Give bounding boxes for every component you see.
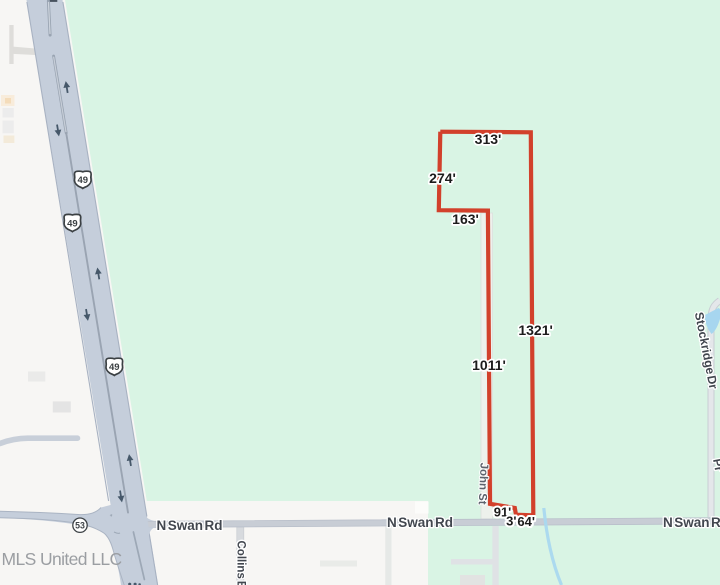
- svg-text:53: 53: [75, 520, 85, 530]
- svg-text:49: 49: [67, 218, 78, 229]
- svg-text:CollinsBlv: CollinsBlv: [234, 541, 246, 585]
- svg-text:274': 274': [429, 170, 456, 186]
- svg-text:3': 3': [506, 514, 516, 529]
- svg-text:JohnSt: JohnSt: [476, 462, 490, 505]
- svg-text:313': 313': [475, 131, 502, 147]
- svg-text:MLS United LLC: MLS United LLC: [2, 549, 122, 569]
- svg-text:NSwanR: NSwanR: [663, 515, 720, 530]
- svg-text:1321': 1321': [518, 322, 552, 338]
- svg-text:163': 163': [452, 211, 479, 227]
- svg-text:64': 64': [517, 514, 535, 529]
- svg-text:49: 49: [78, 175, 89, 186]
- svg-text:49: 49: [109, 362, 120, 373]
- svg-text:1011': 1011': [472, 357, 506, 373]
